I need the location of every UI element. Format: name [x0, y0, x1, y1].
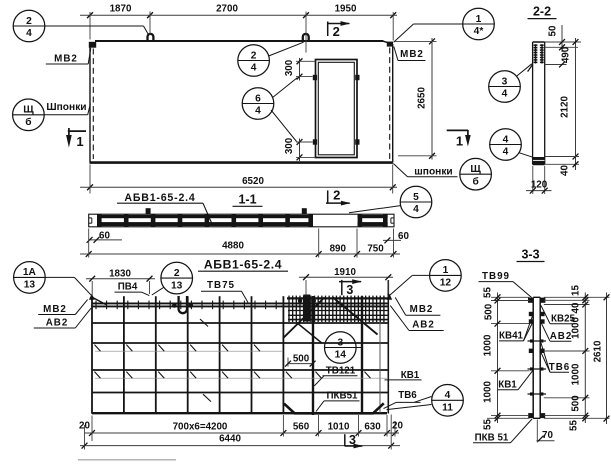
svg-text:40: 40 — [560, 165, 571, 176]
svg-text:15: 15 — [571, 285, 582, 296]
svg-text:700х6=4200: 700х6=4200 — [173, 422, 228, 433]
svg-text:630: 630 — [364, 422, 381, 433]
svg-text:1010: 1010 — [328, 422, 350, 433]
svg-text:3: 3 — [337, 337, 343, 348]
svg-text:Щ: Щ — [470, 164, 481, 175]
svg-text:2650: 2650 — [417, 87, 428, 109]
svg-text:560: 560 — [293, 422, 310, 433]
svg-text:2700: 2700 — [216, 4, 238, 15]
svg-text:Щ: Щ — [23, 105, 34, 116]
svg-text:1: 1 — [76, 134, 83, 149]
svg-text:11: 11 — [442, 403, 453, 414]
svg-text:490: 490 — [561, 46, 572, 63]
svg-text:12: 12 — [440, 278, 452, 289]
svg-text:3-3: 3-3 — [521, 248, 539, 262]
svg-text:2610: 2610 — [593, 340, 604, 362]
svg-text:890: 890 — [330, 244, 347, 255]
svg-text:ТВ75: ТВ75 — [207, 280, 235, 291]
svg-text:МВ2: МВ2 — [54, 54, 78, 65]
svg-text:МВ2: МВ2 — [43, 304, 67, 315]
svg-text:4: 4 — [413, 204, 419, 215]
svg-text:4: 4 — [251, 63, 257, 74]
svg-text:13: 13 — [24, 280, 36, 291]
svg-text:4: 4 — [503, 147, 509, 158]
svg-text:6440: 6440 — [219, 434, 241, 445]
svg-text:2120: 2120 — [560, 96, 571, 118]
svg-text:1: 1 — [476, 14, 482, 25]
svg-text:40: 40 — [571, 302, 582, 313]
svg-text:60: 60 — [398, 231, 409, 242]
svg-text:КВ41: КВ41 — [499, 331, 524, 342]
svg-text:55: 55 — [569, 420, 580, 431]
svg-text:20: 20 — [392, 421, 403, 432]
svg-text:шпонки: шпонки — [414, 167, 452, 178]
svg-text:60: 60 — [99, 231, 110, 242]
svg-text:АВ2: АВ2 — [550, 331, 573, 342]
svg-text:1: 1 — [443, 265, 449, 276]
svg-text:14: 14 — [335, 350, 347, 361]
svg-text:120: 120 — [531, 180, 548, 191]
svg-text:АВ2: АВ2 — [412, 320, 435, 331]
svg-text:ТВ99: ТВ99 — [482, 271, 510, 282]
svg-text:55: 55 — [483, 419, 494, 430]
svg-text:4: 4 — [502, 89, 508, 100]
svg-text:АБВ1-65-2.4: АБВ1-65-2.4 — [204, 258, 282, 272]
svg-text:750: 750 — [367, 244, 384, 255]
svg-text:2: 2 — [333, 24, 340, 39]
svg-text:4: 4 — [255, 106, 261, 117]
svg-text:КВ25: КВ25 — [551, 314, 576, 325]
svg-text:4*: 4* — [474, 26, 484, 37]
svg-text:50: 50 — [548, 25, 559, 36]
svg-text:4880: 4880 — [222, 241, 244, 252]
svg-text:300: 300 — [284, 59, 295, 76]
svg-text:500: 500 — [293, 353, 310, 364]
svg-text:ПВ4: ПВ4 — [118, 282, 138, 293]
svg-text:ТВ6: ТВ6 — [549, 362, 571, 373]
svg-text:1910: 1910 — [334, 267, 356, 278]
svg-text:1000: 1000 — [571, 363, 582, 385]
svg-text:МВ2: МВ2 — [400, 49, 424, 60]
svg-text:4: 4 — [445, 390, 451, 401]
svg-text:АБВ1-65-2.4: АБВ1-65-2.4 — [124, 192, 195, 204]
svg-text:6520: 6520 — [242, 176, 264, 187]
svg-text:1950: 1950 — [335, 4, 357, 15]
svg-text:500: 500 — [484, 303, 495, 320]
svg-text:4: 4 — [503, 134, 509, 145]
svg-text:5: 5 — [413, 192, 419, 203]
svg-text:70: 70 — [542, 430, 553, 441]
svg-text:МВ2: МВ2 — [410, 304, 434, 315]
svg-text:АВ2: АВ2 — [46, 318, 69, 329]
svg-text:2: 2 — [333, 188, 340, 203]
svg-text:3: 3 — [346, 283, 353, 297]
svg-text:ТВ121: ТВ121 — [326, 366, 356, 377]
svg-text:13: 13 — [171, 280, 183, 291]
svg-text:300: 300 — [284, 137, 295, 154]
svg-text:б: б — [472, 175, 478, 187]
svg-text:500: 500 — [571, 395, 582, 412]
svg-text:ТВ6: ТВ6 — [398, 390, 417, 401]
svg-text:2: 2 — [174, 268, 180, 279]
svg-text:4: 4 — [26, 28, 32, 39]
svg-text:6: 6 — [255, 93, 261, 104]
svg-text:1А: 1А — [23, 267, 37, 278]
svg-text:2: 2 — [251, 50, 257, 61]
svg-text:1: 1 — [456, 134, 463, 149]
svg-text:2: 2 — [26, 16, 32, 27]
svg-text:б: б — [25, 116, 31, 128]
svg-text:55: 55 — [483, 287, 494, 298]
svg-text:3: 3 — [502, 76, 508, 87]
svg-text:1000: 1000 — [483, 334, 494, 356]
svg-text:КВ1: КВ1 — [498, 380, 517, 391]
svg-text:2-2: 2-2 — [533, 5, 551, 19]
svg-text:Шпонки: Шпонки — [46, 102, 86, 113]
svg-text:3: 3 — [349, 433, 356, 447]
svg-text:1000: 1000 — [483, 381, 494, 403]
svg-text:ПКВ51: ПКВ51 — [327, 391, 359, 402]
svg-text:ПКВ 51: ПКВ 51 — [475, 433, 509, 444]
svg-text:1-1: 1-1 — [238, 193, 256, 207]
svg-text:1870: 1870 — [110, 4, 132, 15]
svg-text:1830: 1830 — [109, 268, 131, 279]
